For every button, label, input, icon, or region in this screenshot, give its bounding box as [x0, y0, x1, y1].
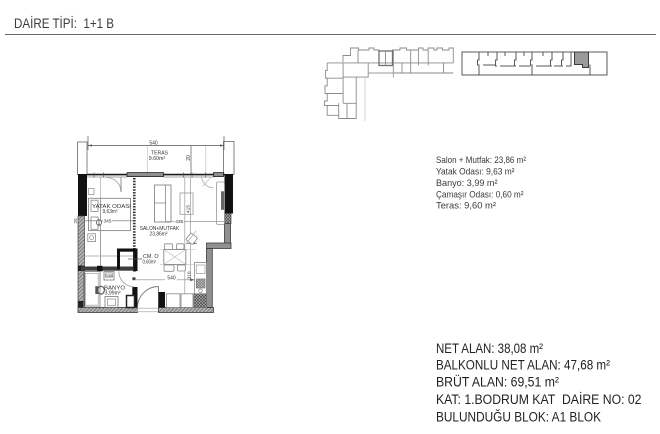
svg-text:540: 540 — [149, 140, 158, 146]
svg-text:DAİRE TİPİ: 1+1 B: DAİRE TİPİ: 1+1 B — [14, 14, 114, 32]
svg-text:9,63m²: 9,63m² — [103, 209, 118, 215]
svg-text:Salon + Mutfak: 23,86 m²: Salon + Mutfak: 23,86 m² — [436, 155, 526, 165]
svg-text:20: 20 — [186, 155, 192, 161]
svg-text:435: 435 — [175, 219, 183, 225]
svg-text:KAT: 1.BODRUM KAT DAİRE NO: 0: KAT: 1.BODRUM KAT DAİRE NO: 02 — [436, 392, 642, 407]
svg-text:BALKONLU NET ALAN: 47,68 m²: BALKONLU NET ALAN: 47,68 m² — [436, 358, 610, 373]
svg-text:Yatak Odası: 9,63 m²: Yatak Odası: 9,63 m² — [436, 167, 515, 177]
svg-text:BRÜT ALAN: 69,51 m²: BRÜT ALAN: 69,51 m² — [436, 374, 559, 389]
svg-text:BULUNDUĞU BLOK: A1 BLOK: BULUNDUĞU BLOK: A1 BLOK — [436, 410, 601, 425]
svg-text:345: 345 — [103, 219, 111, 225]
svg-text:3,99m²: 3,99m² — [105, 290, 121, 296]
svg-text:0,60m²: 0,60m² — [143, 259, 157, 265]
svg-text:0.55: 0.55 — [106, 274, 113, 278]
svg-text:Banyo: 3,99 m²: Banyo: 3,99 m² — [436, 178, 498, 188]
svg-text:415: 415 — [185, 205, 191, 213]
svg-text:540: 540 — [167, 276, 176, 282]
svg-text:23,86m²: 23,86m² — [150, 232, 168, 238]
svg-text:20: 20 — [73, 218, 78, 224]
svg-text:Teras: 9,60 m²: Teras: 9,60 m² — [436, 201, 496, 211]
svg-text:310: 310 — [186, 271, 192, 279]
svg-text:NET ALAN: 38,08 m²: NET ALAN: 38,08 m² — [436, 341, 543, 356]
svg-text:9.60m²: 9.60m² — [149, 156, 166, 162]
svg-text:Çamaşır Odası: 0,60 m²: Çamaşır Odası: 0,60 m² — [436, 189, 524, 199]
